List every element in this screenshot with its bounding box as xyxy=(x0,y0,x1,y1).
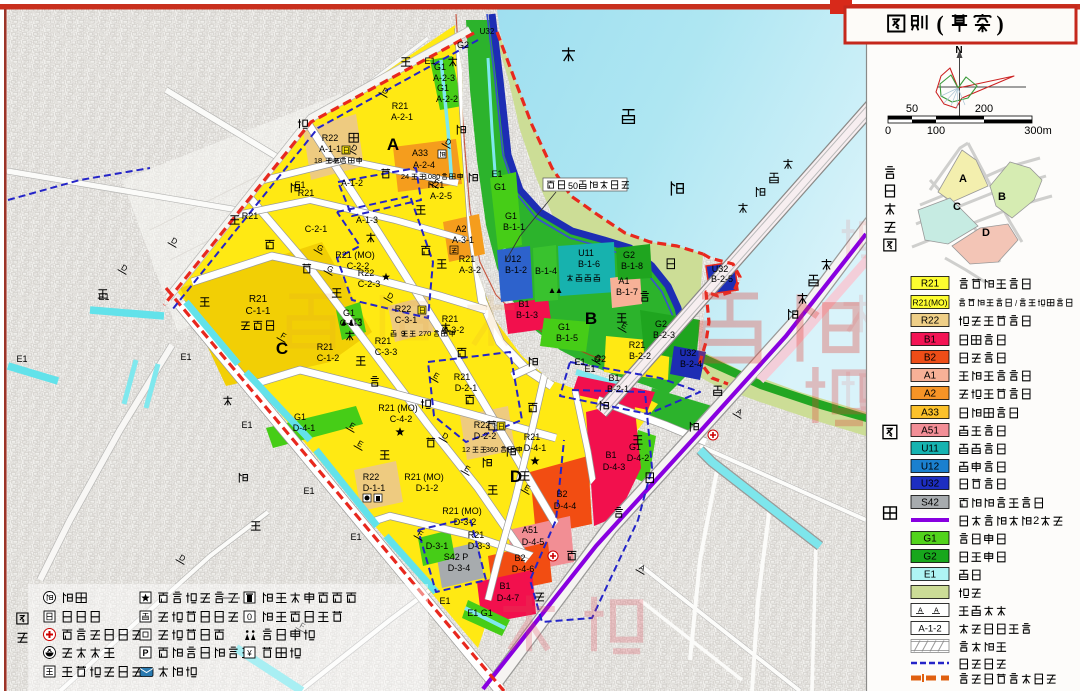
svg-text:S42 P: S42 P xyxy=(444,552,469,562)
svg-text:D-4-2: D-4-2 xyxy=(627,453,650,463)
svg-text:R22: R22 xyxy=(358,268,375,278)
svg-text:R22: R22 xyxy=(363,472,380,482)
svg-text:A-2-5: A-2-5 xyxy=(430,191,452,201)
svg-text:C-2-1: C-2-1 xyxy=(305,224,328,234)
svg-text:U11: U11 xyxy=(578,248,594,258)
svg-text:): ) xyxy=(996,11,1003,36)
svg-text:R22: R22 xyxy=(474,420,491,430)
svg-text:R21: R21 xyxy=(392,101,409,111)
svg-text:A-1-2: A-1-2 xyxy=(341,178,363,188)
svg-text:R21: R21 xyxy=(375,336,392,346)
svg-text:D-4-5: D-4-5 xyxy=(522,537,545,547)
svg-text:A51: A51 xyxy=(921,426,939,437)
svg-text:E1: E1 xyxy=(98,292,109,302)
svg-text:D-4-1: D-4-1 xyxy=(524,443,547,453)
svg-text:B-1-5: B-1-5 xyxy=(556,333,578,343)
svg-text:D-3-2: D-3-2 xyxy=(454,517,477,527)
svg-text:A2: A2 xyxy=(455,224,466,234)
svg-text:B-2-5: B-2-5 xyxy=(711,274,733,284)
svg-text:D-4-6: D-4-6 xyxy=(512,564,535,574)
svg-text:200: 200 xyxy=(975,103,993,115)
svg-text:50: 50 xyxy=(568,181,578,191)
svg-text:A33: A33 xyxy=(921,408,939,419)
svg-text:R21: R21 xyxy=(428,180,445,190)
svg-text:G1: G1 xyxy=(434,62,446,72)
svg-text:C: C xyxy=(953,201,961,213)
svg-text:C-3-1: C-3-1 xyxy=(395,315,418,325)
svg-text:D: D xyxy=(982,227,990,239)
svg-text:18: 18 xyxy=(314,156,322,165)
svg-text:540: 540 xyxy=(329,156,342,165)
svg-text:270: 270 xyxy=(419,329,432,338)
svg-text:R21: R21 xyxy=(242,211,259,221)
svg-text:G1: G1 xyxy=(923,534,937,545)
svg-text:A-2-2: A-2-2 xyxy=(436,94,458,104)
svg-text:B: B xyxy=(585,309,597,328)
svg-text:50: 50 xyxy=(906,103,918,115)
svg-text:B1: B1 xyxy=(518,299,529,309)
svg-text:E1: E1 xyxy=(924,570,937,581)
svg-text:G1: G1 xyxy=(437,83,449,93)
svg-text:G1: G1 xyxy=(558,322,570,332)
svg-text:G1: G1 xyxy=(629,442,641,452)
svg-text:D-2-1: D-2-1 xyxy=(455,383,478,393)
svg-text:R21 (MO): R21 (MO) xyxy=(442,506,482,516)
svg-text:A-2-3: A-2-3 xyxy=(433,73,455,83)
svg-text:D-2-2: D-2-2 xyxy=(474,431,497,441)
svg-text:D-4-4: D-4-4 xyxy=(554,501,577,511)
svg-text:U12: U12 xyxy=(505,254,522,264)
svg-text:A33: A33 xyxy=(412,148,428,158)
svg-text:R21: R21 xyxy=(442,314,459,324)
svg-text:100: 100 xyxy=(927,125,945,137)
svg-text:R21(MO): R21(MO) xyxy=(913,298,948,308)
svg-text:R21: R21 xyxy=(524,432,541,442)
svg-text:R21 (MO): R21 (MO) xyxy=(378,403,418,413)
svg-text:E1: E1 xyxy=(303,486,314,496)
svg-text:D-1-1: D-1-1 xyxy=(363,483,386,493)
svg-text:24: 24 xyxy=(401,172,409,181)
svg-text:E1: E1 xyxy=(241,420,252,430)
svg-text:A1: A1 xyxy=(618,276,629,286)
svg-text:U32: U32 xyxy=(921,479,940,490)
svg-text:E1: E1 xyxy=(491,169,502,179)
svg-text:B-1-7: B-1-7 xyxy=(616,287,638,297)
svg-text:E1: E1 xyxy=(584,364,595,374)
svg-text:B1: B1 xyxy=(924,335,937,346)
svg-text:360: 360 xyxy=(486,445,499,454)
svg-text:B-1-4: B-1-4 xyxy=(535,266,557,276)
svg-text:B-2-4: B-2-4 xyxy=(680,359,702,369)
svg-text:C-4-2: C-4-2 xyxy=(390,414,413,424)
svg-text:U32: U32 xyxy=(480,27,495,36)
svg-text:A-2-1: A-2-1 xyxy=(391,112,413,122)
svg-text:B-1-6: B-1-6 xyxy=(578,259,600,269)
svg-text:E1: E1 xyxy=(16,354,27,364)
svg-text:R22: R22 xyxy=(395,304,412,314)
svg-text:0: 0 xyxy=(247,612,252,622)
svg-text:B1: B1 xyxy=(499,581,510,591)
svg-text:R21: R21 xyxy=(249,294,268,305)
svg-text:G1: G1 xyxy=(494,182,506,192)
svg-text:C-2-3: C-2-3 xyxy=(358,279,381,289)
svg-text:G2: G2 xyxy=(923,552,937,563)
svg-text:D-4-3: D-4-3 xyxy=(603,462,626,472)
svg-text:R22: R22 xyxy=(921,316,940,327)
svg-text:G2: G2 xyxy=(457,40,469,50)
svg-text:E1: E1 xyxy=(350,532,361,542)
svg-text:U12: U12 xyxy=(921,462,940,473)
svg-text:U11: U11 xyxy=(921,444,939,455)
svg-text:E1: E1 xyxy=(180,352,191,362)
svg-text:D-3-1: D-3-1 xyxy=(426,541,449,551)
svg-text:D-3-3: D-3-3 xyxy=(468,541,491,551)
svg-text:A-3-1: A-3-1 xyxy=(452,235,474,245)
svg-text:A-1-2: A-1-2 xyxy=(918,624,941,635)
svg-text:C-1-1: C-1-1 xyxy=(245,306,270,317)
svg-text:B: B xyxy=(998,191,1006,203)
svg-text:A: A xyxy=(387,135,399,154)
svg-text:1080: 1080 xyxy=(424,172,441,181)
svg-text:C-1-2: C-1-2 xyxy=(317,353,340,363)
svg-text:A-2-4: A-2-4 xyxy=(413,160,435,170)
svg-text:A-1-3: A-1-3 xyxy=(356,215,378,225)
svg-text:D-4-1: D-4-1 xyxy=(293,423,316,433)
svg-text:G1: G1 xyxy=(294,412,306,422)
svg-text:G2: G2 xyxy=(623,250,635,260)
svg-text:C: C xyxy=(276,339,288,358)
svg-text:B-1-3: B-1-3 xyxy=(516,310,538,320)
svg-text:R22: R22 xyxy=(322,133,339,143)
svg-text:D-1-2: D-1-2 xyxy=(416,483,439,493)
svg-text:(: ( xyxy=(936,11,943,36)
svg-text:A2: A2 xyxy=(924,389,937,400)
svg-text:D-4-7: D-4-7 xyxy=(497,593,520,603)
svg-text:A: A xyxy=(959,173,967,185)
svg-text:R21 (MO): R21 (MO) xyxy=(404,472,444,482)
svg-text:G2: G2 xyxy=(594,354,606,364)
svg-text:E1 G1: E1 G1 xyxy=(467,608,493,618)
svg-text:G1: G1 xyxy=(343,308,355,318)
svg-text:2: 2 xyxy=(1033,515,1039,527)
svg-text:E1: E1 xyxy=(294,180,305,190)
svg-text:P: P xyxy=(142,648,148,658)
svg-text:G2: G2 xyxy=(655,319,667,329)
svg-text:B-1-8: B-1-8 xyxy=(621,261,643,271)
svg-text:E1: E1 xyxy=(424,56,435,66)
svg-text:300m: 300m xyxy=(1024,125,1052,137)
svg-text:S42: S42 xyxy=(921,498,939,509)
svg-text:12: 12 xyxy=(462,445,470,454)
svg-text:R21: R21 xyxy=(317,342,334,352)
svg-text:U32: U32 xyxy=(680,348,697,358)
svg-text:B-1-2: B-1-2 xyxy=(505,265,527,275)
svg-text:G1: G1 xyxy=(505,211,517,221)
svg-text:B-1-1: B-1-1 xyxy=(503,222,525,232)
svg-text:C-3-3: C-3-3 xyxy=(375,347,398,357)
svg-text:U32: U32 xyxy=(712,264,729,274)
svg-text:B2: B2 xyxy=(924,353,937,364)
svg-text:A-3-2: A-3-2 xyxy=(459,265,481,275)
svg-text:R21: R21 xyxy=(468,530,485,540)
svg-text:B2: B2 xyxy=(556,489,567,499)
svg-text:R21: R21 xyxy=(459,254,476,264)
svg-text:D: D xyxy=(510,467,522,486)
svg-text:R21: R21 xyxy=(921,279,940,290)
svg-text:A1: A1 xyxy=(924,371,937,382)
svg-text:B-2-2: B-2-2 xyxy=(629,351,651,361)
svg-text:¥: ¥ xyxy=(246,649,252,658)
svg-text:E1: E1 xyxy=(574,357,585,367)
svg-text:B-2-3: B-2-3 xyxy=(653,330,675,340)
svg-text:D-3-4: D-3-4 xyxy=(448,563,471,573)
svg-text:A-1-1: A-1-1 xyxy=(319,144,341,154)
svg-text:B-2-1: B-2-1 xyxy=(607,384,629,394)
svg-text:0: 0 xyxy=(885,125,891,137)
svg-text:E1: E1 xyxy=(439,596,450,606)
svg-text:A51: A51 xyxy=(522,525,538,535)
svg-text:R21: R21 xyxy=(629,340,646,350)
svg-text:R21 (MO): R21 (MO) xyxy=(335,250,375,260)
svg-text:B1: B1 xyxy=(605,450,616,460)
svg-text:B2: B2 xyxy=(514,553,525,563)
svg-text:B1: B1 xyxy=(608,373,619,383)
svg-text:R21: R21 xyxy=(454,372,471,382)
